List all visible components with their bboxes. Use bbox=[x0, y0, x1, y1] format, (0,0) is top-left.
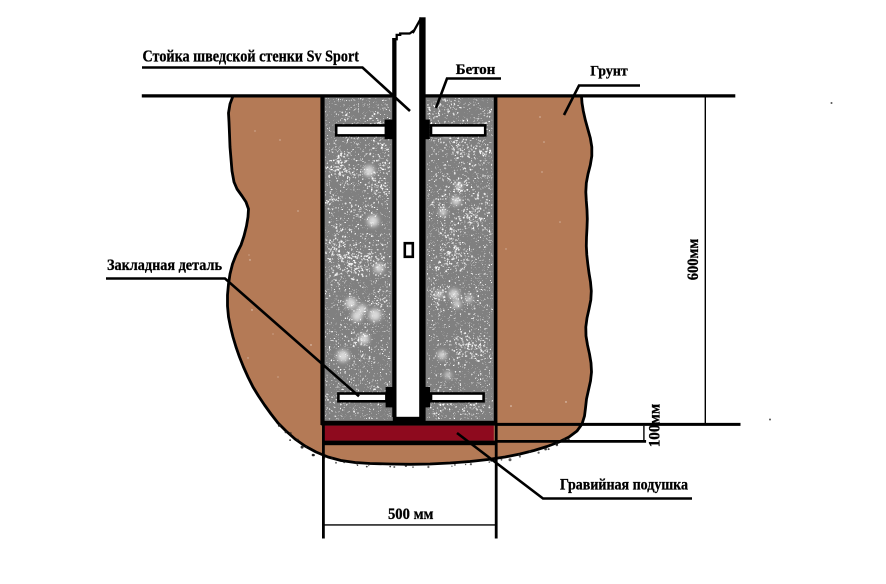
svg-text:Бетон: Бетон bbox=[456, 62, 496, 78]
svg-text:Грунт: Грунт bbox=[590, 64, 628, 80]
svg-text:600мм: 600мм bbox=[685, 238, 702, 280]
svg-text:500 мм: 500 мм bbox=[388, 506, 434, 523]
svg-text:Закладная деталь: Закладная деталь bbox=[107, 257, 222, 274]
svg-text:100мм: 100мм bbox=[646, 404, 663, 448]
svg-text:Гравийная подушка: Гравийная подушка bbox=[560, 477, 688, 494]
svg-text:Стойка шведской стенки Sv Spor: Стойка шведской стенки Sv Sport bbox=[143, 46, 360, 65]
